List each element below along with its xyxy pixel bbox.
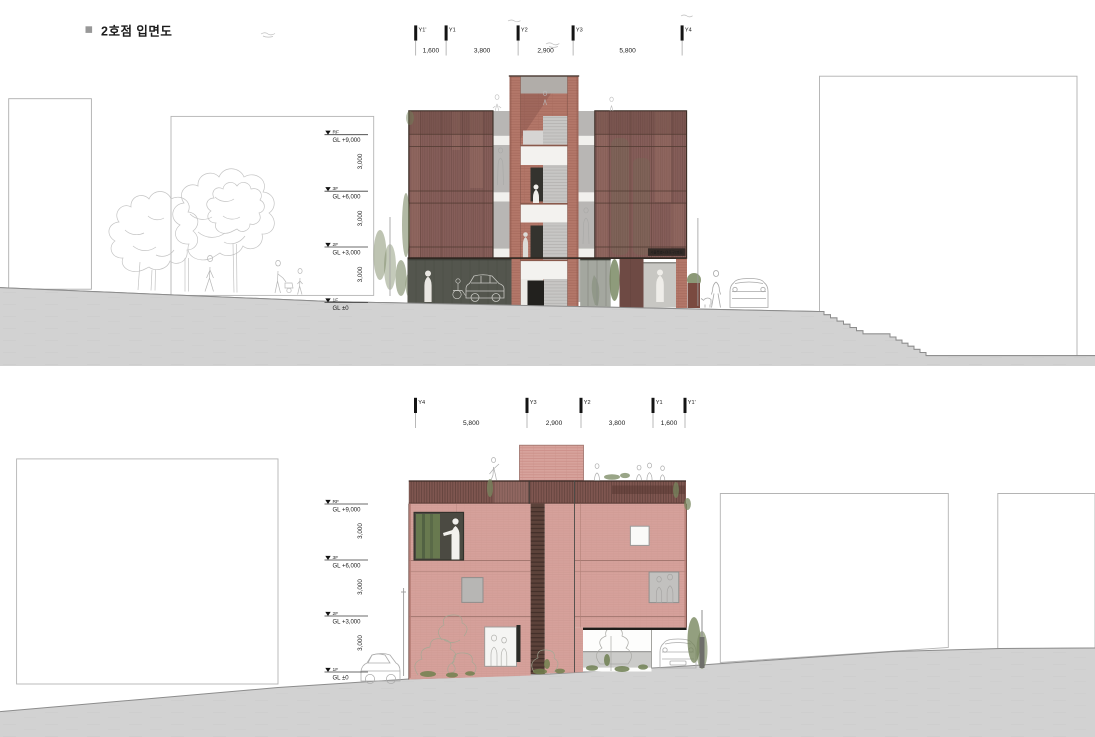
svg-text:5,800: 5,800 — [619, 48, 636, 55]
svg-text:2F: 2F — [333, 242, 339, 248]
svg-text:서울특별시마포구2호점: 서울특별시마포구2호점 — [651, 250, 683, 255]
svg-text:3,000: 3,000 — [357, 635, 364, 651]
svg-text:2,900: 2,900 — [546, 420, 563, 427]
svg-text:3,000: 3,000 — [357, 266, 364, 282]
svg-text:Y2: Y2 — [521, 28, 528, 34]
svg-text:GL ±0: GL ±0 — [333, 676, 350, 682]
svg-text:GL +6,000: GL +6,000 — [333, 195, 362, 201]
svg-text:1,600: 1,600 — [661, 420, 678, 427]
svg-text:Y4: Y4 — [418, 400, 425, 406]
svg-text:3,800: 3,800 — [609, 420, 626, 427]
svg-text:3F: 3F — [333, 186, 339, 192]
svg-text:3,800: 3,800 — [474, 48, 491, 55]
svg-text:RF: RF — [333, 499, 340, 505]
svg-text:5,800: 5,800 — [463, 420, 480, 427]
svg-text:RF: RF — [333, 130, 340, 136]
svg-text:3,000: 3,000 — [357, 579, 364, 595]
svg-text:1F: 1F — [333, 297, 339, 303]
svg-text:GL +9,000: GL +9,000 — [333, 138, 362, 144]
svg-text:Y1: Y1 — [449, 28, 456, 34]
svg-text:Y3: Y3 — [530, 400, 537, 406]
svg-text:Y2: Y2 — [584, 400, 591, 406]
svg-text:Y3: Y3 — [576, 28, 583, 34]
svg-text:3F: 3F — [333, 555, 339, 561]
svg-text:GL +6,000: GL +6,000 — [333, 564, 362, 570]
svg-text:GL +3,000: GL +3,000 — [333, 251, 362, 257]
svg-text:2호점 입면도: 2호점 입면도 — [101, 24, 172, 39]
svg-text:1,600: 1,600 — [423, 48, 440, 55]
svg-text:3,000: 3,000 — [357, 523, 364, 539]
svg-text:GL ±0: GL ±0 — [333, 306, 350, 312]
svg-text:GL +3,000: GL +3,000 — [333, 620, 362, 626]
svg-text:GL +9,000: GL +9,000 — [333, 508, 362, 514]
svg-text:Y4: Y4 — [685, 28, 692, 34]
svg-text:Y1: Y1 — [656, 400, 663, 406]
svg-text:2F: 2F — [333, 611, 339, 617]
svg-text:3,000: 3,000 — [357, 153, 364, 169]
svg-text:3,000: 3,000 — [357, 210, 364, 226]
svg-text:1F: 1F — [333, 667, 339, 673]
svg-text:2,900: 2,900 — [537, 48, 554, 55]
svg-text:Y1': Y1' — [688, 400, 696, 406]
svg-text:Y1': Y1' — [419, 28, 427, 34]
